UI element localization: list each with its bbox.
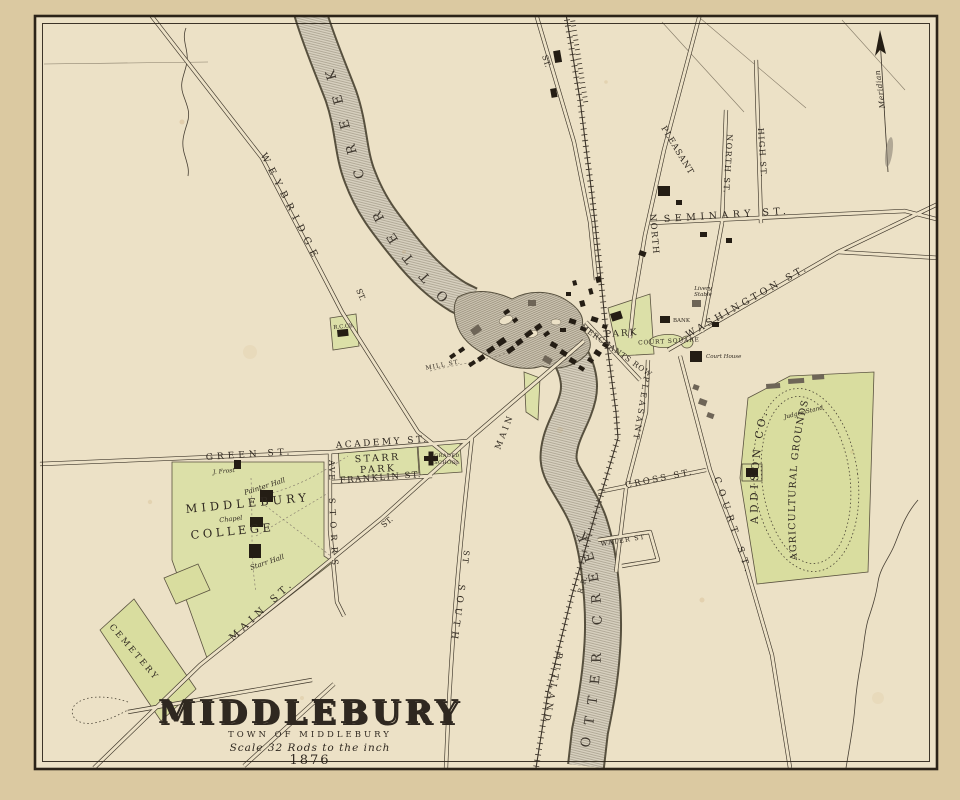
svg-text:AVE: AVE xyxy=(327,459,336,482)
label-graded-school-1: GRADED xyxy=(434,453,459,459)
map-sheet: Meridian OTTER CREEK OTTER CREEK WEYBRID… xyxy=(0,0,960,800)
label-bank: BANK xyxy=(673,318,691,324)
middlebury-map: Meridian OTTER CREEK OTTER CREEK WEYBRID… xyxy=(0,0,960,800)
creek-island xyxy=(551,319,561,325)
map-year: 1876 xyxy=(289,753,330,768)
map-title: MIDDLEBURY xyxy=(158,692,462,731)
court-house-building xyxy=(690,351,702,362)
label-starr-park-2: PARK xyxy=(360,463,397,476)
starr-park-label-group: STARR PARK xyxy=(354,452,401,476)
label-graded-school-2: SCHOOL xyxy=(434,460,460,466)
bank-building xyxy=(660,316,670,323)
starr-hall-building xyxy=(249,544,261,558)
livery-stable-building xyxy=(692,300,701,307)
label-storrs-ave-suffix: AVE xyxy=(327,459,336,482)
church-building xyxy=(658,186,670,196)
j-frost-building xyxy=(234,460,241,469)
svg-text:ST: ST xyxy=(460,550,471,566)
label-south-st-suffix: ST xyxy=(460,550,471,566)
label-court-house: Court House xyxy=(706,354,742,360)
map-subtitle: TOWN OF MIDDLEBURY xyxy=(228,730,392,740)
label-livery-2: Stable xyxy=(694,292,713,298)
